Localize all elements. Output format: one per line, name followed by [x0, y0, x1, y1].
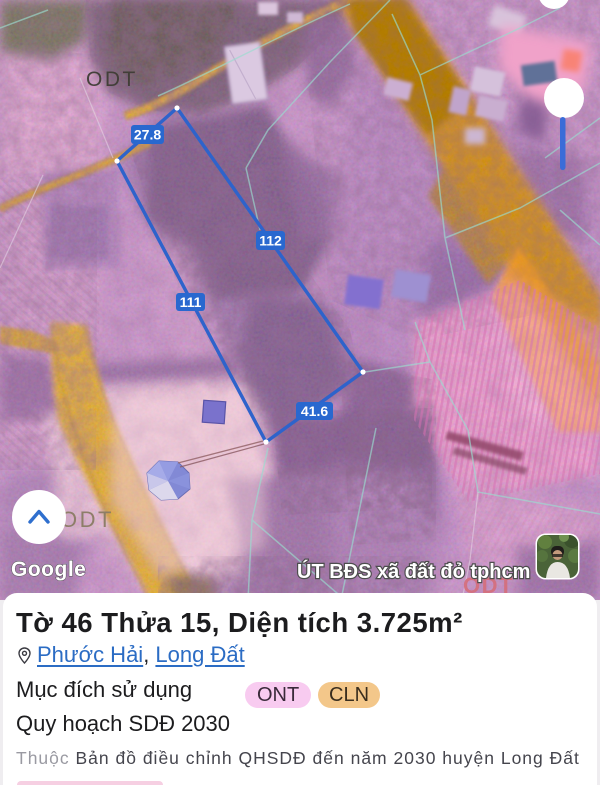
svg-text:27.8: 27.8 — [134, 127, 161, 143]
svg-text:Google: Google — [11, 558, 86, 581]
svg-text:41.6: 41.6 — [301, 403, 328, 419]
svg-text:ODT: ODT — [60, 507, 114, 532]
svg-text:ÚT BĐS xã đất đỏ tphcm: ÚT BĐS xã đất đỏ tphcm — [297, 559, 530, 583]
svg-text:ODT: ODT — [86, 68, 138, 91]
svg-text:111: 111 — [180, 294, 202, 310]
svg-text:112: 112 — [259, 233, 282, 249]
